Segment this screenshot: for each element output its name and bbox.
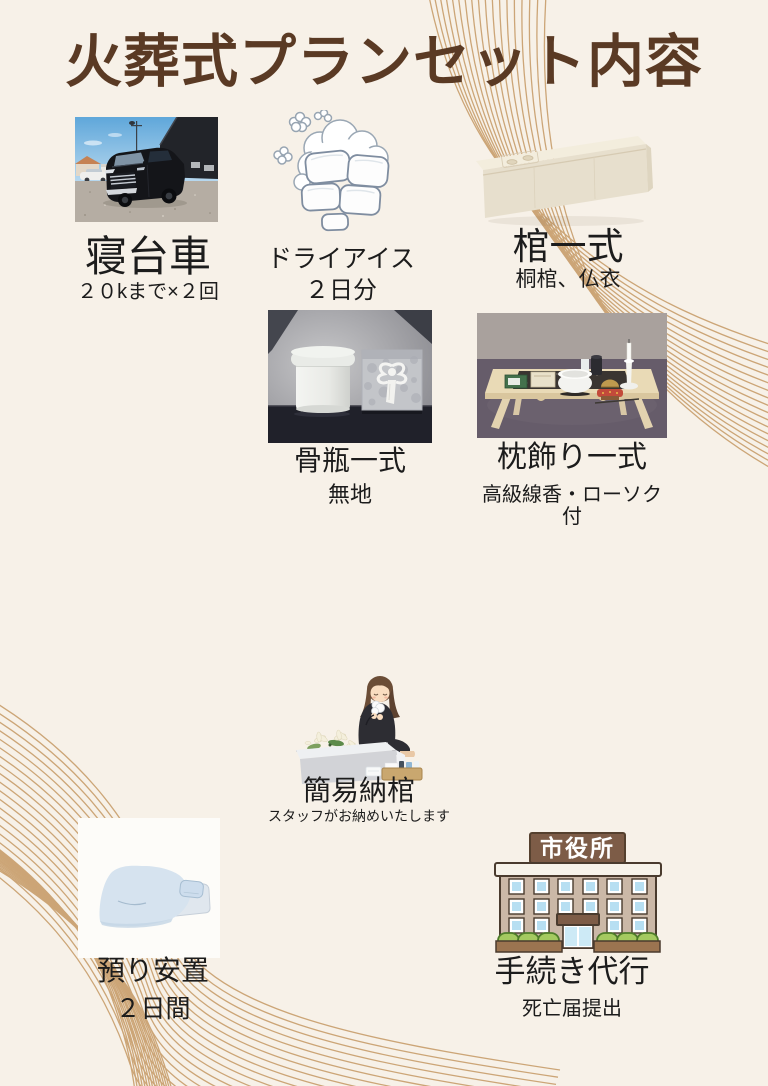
coffin-label: 棺一式 (476, 226, 660, 267)
urn-set-photo (268, 310, 432, 443)
pillow-altar-label: 枕飾り一式 (477, 441, 667, 475)
funeral-plan-flyer: 火葬式プランセット内容 (0, 0, 768, 1086)
custody-label: 預り安置 (63, 955, 243, 986)
city-hall-sign-text: 市役所 (540, 835, 615, 861)
dry-ice-label: ドライアイス (256, 245, 426, 273)
encoffining-label: 簡易納棺 (268, 775, 450, 806)
encoffining-illustration (296, 667, 426, 785)
dry-ice-sublabel: ２日分 (256, 278, 426, 305)
custody-sublabel: ２日間 (63, 995, 243, 1023)
dry-ice-illustration (272, 110, 412, 245)
page-title: 火葬式プランセット内容 (0, 16, 768, 98)
hearse-label: 寝台車 (58, 233, 238, 280)
custody-card (78, 818, 220, 958)
hearse-sublabel: ２０kまで×２回 (48, 281, 248, 303)
procedure-agency-sublabel: 死亡届提出 (478, 998, 666, 1020)
hearse-photo (75, 117, 218, 222)
encoffining-sublabel: スタッフがお納めいたします (263, 809, 455, 825)
coffin-photo (474, 126, 666, 234)
pillow-altar-photo (477, 313, 667, 438)
urn-sublabel: 無地 (260, 483, 440, 508)
city-hall-illustration: 市役所 (494, 826, 662, 956)
futon-illustration (78, 818, 220, 958)
coffin-sublabel: 桐棺、仏衣 (476, 268, 660, 292)
procedure-agency-label: 手続き代行 (478, 955, 666, 990)
pillow-altar-sublabel: 高級線香・ローソク付 (477, 484, 667, 529)
urn-label: 骨瓶一式 (260, 445, 440, 476)
